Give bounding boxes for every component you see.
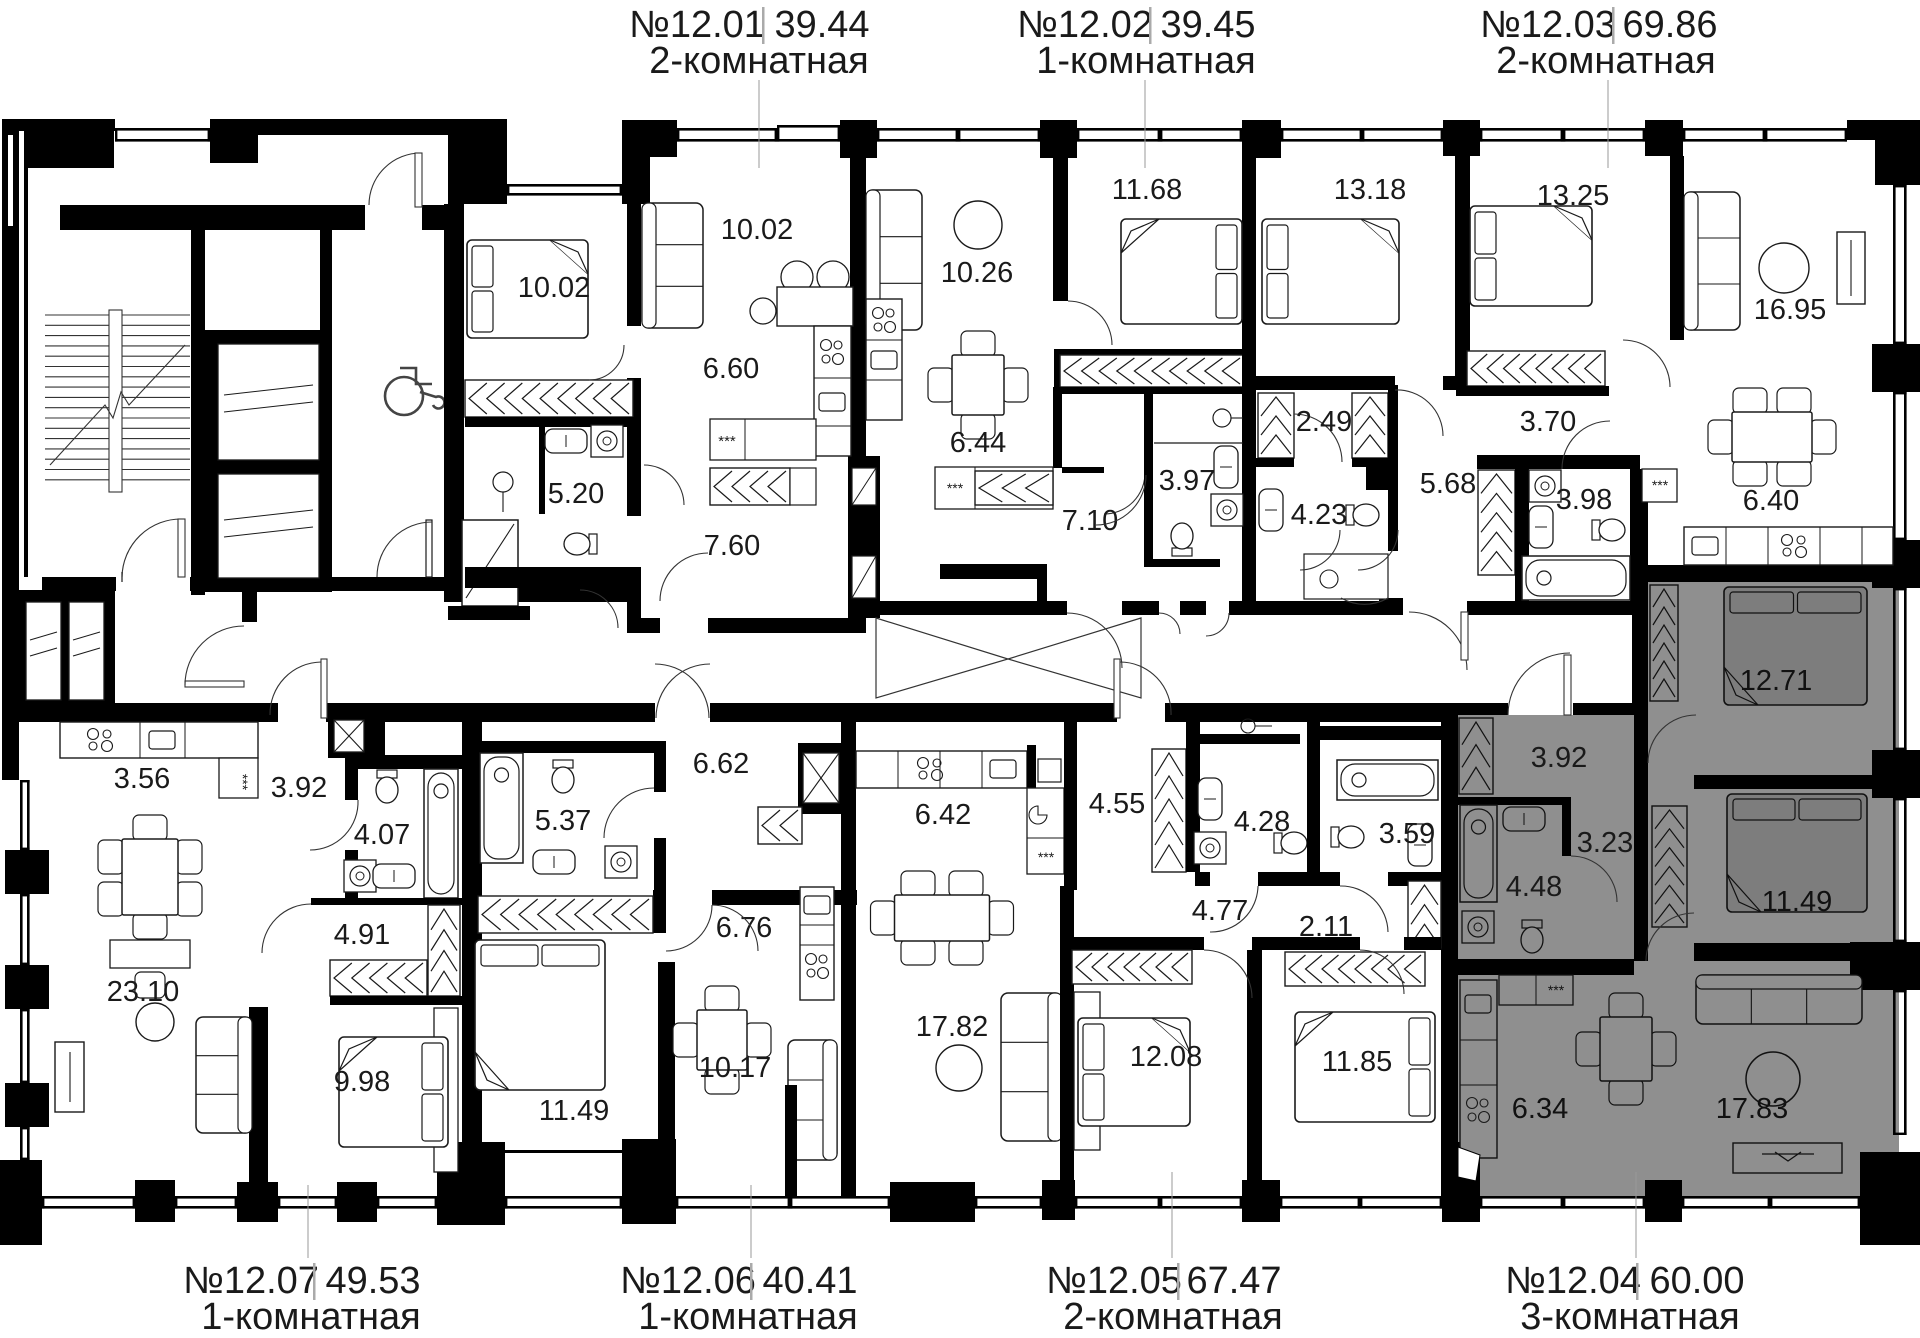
svg-text:6.34: 6.34: [1512, 1093, 1568, 1125]
svg-text:***: ***: [1038, 849, 1055, 865]
svg-text:6.42: 6.42: [915, 799, 971, 831]
svg-text:3-комнатная: 3-комнатная: [1520, 1296, 1739, 1338]
svg-text:6.60: 6.60: [703, 353, 759, 385]
svg-text:1-комнатная: 1-комнатная: [638, 1296, 857, 1338]
svg-text:2-комнатная: 2-комнатная: [649, 40, 868, 82]
svg-text:1-комнатная: 1-комнатная: [201, 1296, 420, 1338]
svg-text:1-комнатная: 1-комнатная: [1036, 40, 1255, 82]
svg-text:6.62: 6.62: [693, 748, 749, 780]
svg-text:12.71: 12.71: [1740, 665, 1813, 697]
svg-text:11.49: 11.49: [539, 1095, 609, 1127]
svg-text:6.44: 6.44: [950, 427, 1006, 459]
svg-text:3.56: 3.56: [114, 763, 170, 795]
svg-text:23.10: 23.10: [107, 976, 180, 1008]
svg-text:17.82: 17.82: [916, 1011, 989, 1043]
svg-text:4.07: 4.07: [354, 819, 410, 851]
svg-text:5.68: 5.68: [1420, 468, 1476, 500]
svg-text:10.02: 10.02: [518, 272, 591, 304]
svg-text:4.91: 4.91: [334, 919, 390, 951]
svg-text:6.40: 6.40: [1743, 485, 1799, 517]
svg-text:10.26: 10.26: [941, 257, 1014, 289]
svg-text:4.28: 4.28: [1234, 806, 1290, 838]
svg-text:4.48: 4.48: [1506, 871, 1562, 903]
svg-text:12.08: 12.08: [1130, 1041, 1203, 1073]
svg-text:11.85: 11.85: [1322, 1046, 1392, 1078]
svg-text:10.02: 10.02: [721, 214, 794, 246]
svg-text:3.92: 3.92: [1531, 742, 1587, 774]
svg-text:11.49: 11.49: [1762, 886, 1832, 918]
svg-text:10.17: 10.17: [699, 1052, 772, 1084]
svg-text:3.59: 3.59: [1379, 818, 1435, 850]
svg-text:3.70: 3.70: [1520, 406, 1576, 438]
svg-text:6.76: 6.76: [716, 912, 772, 944]
svg-text:3.97: 3.97: [1159, 465, 1215, 497]
svg-text:5.20: 5.20: [548, 478, 604, 510]
svg-text:4.23: 4.23: [1291, 499, 1347, 531]
svg-text:13.25: 13.25: [1537, 180, 1610, 212]
svg-text:***: ***: [1548, 982, 1565, 998]
svg-text:***: ***: [1652, 477, 1669, 493]
svg-text:16.95: 16.95: [1754, 294, 1827, 326]
svg-text:2.49: 2.49: [1296, 406, 1352, 438]
svg-text:2-комнатная: 2-комнатная: [1496, 40, 1715, 82]
svg-text:7.60: 7.60: [704, 530, 760, 562]
svg-text:2-комнатная: 2-комнатная: [1063, 1296, 1282, 1338]
svg-text:***: ***: [947, 480, 964, 496]
svg-text:11.68: 11.68: [1112, 174, 1182, 206]
svg-text:13.18: 13.18: [1334, 174, 1407, 206]
svg-text:3.98: 3.98: [1556, 484, 1612, 516]
svg-text:3.92: 3.92: [271, 772, 327, 804]
svg-text:***: ***: [718, 433, 736, 450]
svg-text:4.55: 4.55: [1089, 788, 1145, 820]
svg-text:9.98: 9.98: [334, 1066, 390, 1098]
svg-text:17.83: 17.83: [1716, 1093, 1789, 1125]
svg-text:7.10: 7.10: [1062, 505, 1118, 537]
svg-text:5.37: 5.37: [535, 805, 591, 837]
svg-text:***: ***: [235, 774, 251, 791]
svg-text:3.23: 3.23: [1577, 827, 1633, 859]
